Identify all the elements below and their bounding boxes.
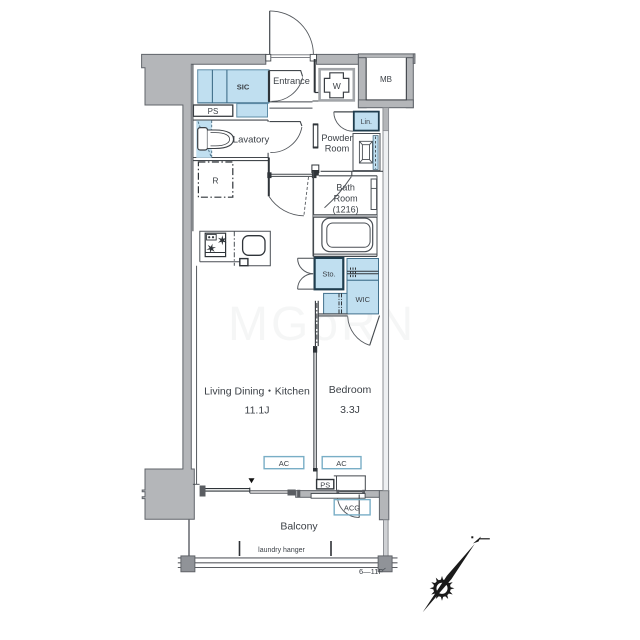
svg-text:AC: AC (279, 459, 290, 468)
svg-text:11.1J: 11.1J (245, 405, 270, 417)
svg-text:Bath: Bath (336, 183, 355, 193)
svg-text:laundry hanger: laundry hanger (258, 547, 305, 554)
svg-text:WIC: WIC (356, 295, 371, 304)
svg-text:Room: Room (325, 144, 350, 154)
svg-text:MB: MB (380, 75, 392, 84)
svg-text:W: W (333, 81, 341, 91)
svg-text:PS: PS (320, 481, 330, 490)
svg-text:Powder: Powder (321, 133, 352, 143)
svg-text:Bedroom: Bedroom (329, 384, 372, 396)
svg-text:SIC: SIC (237, 83, 250, 92)
svg-text:6—11F: 6—11F (359, 567, 383, 576)
svg-text:3.3J: 3.3J (340, 404, 360, 416)
svg-text:Living Dining・Kitchen: Living Dining・Kitchen (204, 386, 310, 398)
svg-text:AC: AC (336, 459, 347, 468)
svg-text:ACG: ACG (344, 503, 360, 512)
svg-text:Sto.: Sto. (322, 270, 335, 279)
svg-text:Balcony: Balcony (280, 521, 318, 533)
svg-text:PS: PS (208, 107, 219, 116)
svg-text:(1216): (1216) (333, 205, 359, 215)
svg-text:R: R (212, 176, 218, 186)
svg-text:Room: Room (334, 194, 358, 204)
svg-text:Lin.: Lin. (361, 119, 372, 126)
svg-text:Entrance: Entrance (273, 76, 310, 86)
svg-text:Lavatory: Lavatory (233, 135, 270, 146)
